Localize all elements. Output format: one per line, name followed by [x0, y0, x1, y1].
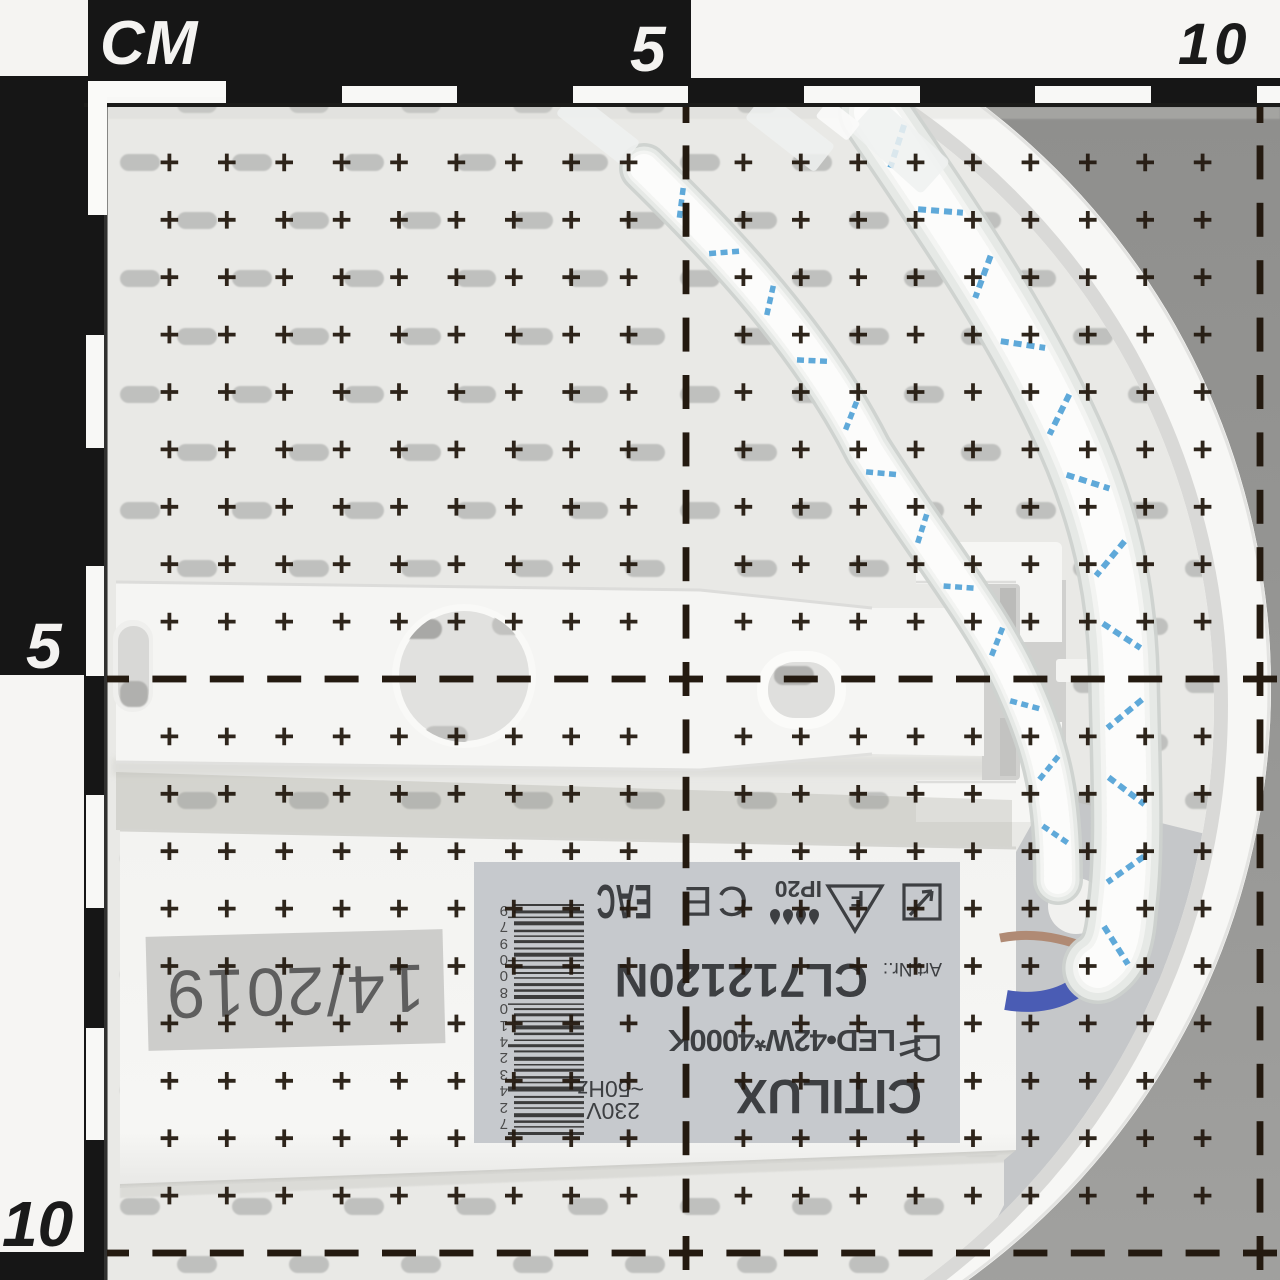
- svg-text:7: 7: [500, 918, 508, 935]
- svg-text:2: 2: [500, 1049, 508, 1066]
- svg-text:Art.Nr.:: Art.Nr.:: [883, 958, 942, 979]
- svg-text:0: 0: [500, 967, 508, 984]
- svg-text:5: 5: [26, 610, 63, 682]
- svg-text:CL712120N: CL712120N: [615, 954, 868, 1007]
- svg-text:CITILUX: CITILUX: [735, 1069, 922, 1122]
- svg-text:LED•42W*4000K: LED•42W*4000K: [667, 1023, 896, 1058]
- svg-text:8: 8: [500, 984, 508, 1001]
- svg-text:10: 10: [1178, 12, 1251, 77]
- svg-text:IP20: IP20: [775, 876, 822, 902]
- svg-text:5: 5: [630, 13, 667, 85]
- svg-text:1: 1: [500, 1017, 508, 1034]
- svg-text:14/2019: 14/2019: [164, 950, 426, 1033]
- svg-text:9: 9: [500, 935, 508, 952]
- svg-text:EAC: EAC: [597, 874, 652, 927]
- svg-text:4: 4: [500, 1082, 508, 1099]
- svg-text:CM: CM: [100, 9, 199, 78]
- svg-text:0: 0: [500, 1000, 508, 1017]
- svg-text:7: 7: [500, 1115, 508, 1132]
- svg-text:2: 2: [500, 1099, 508, 1116]
- svg-text:CE: CE: [680, 878, 748, 925]
- svg-text:10: 10: [2, 1188, 73, 1260]
- svg-text:4: 4: [500, 1033, 508, 1050]
